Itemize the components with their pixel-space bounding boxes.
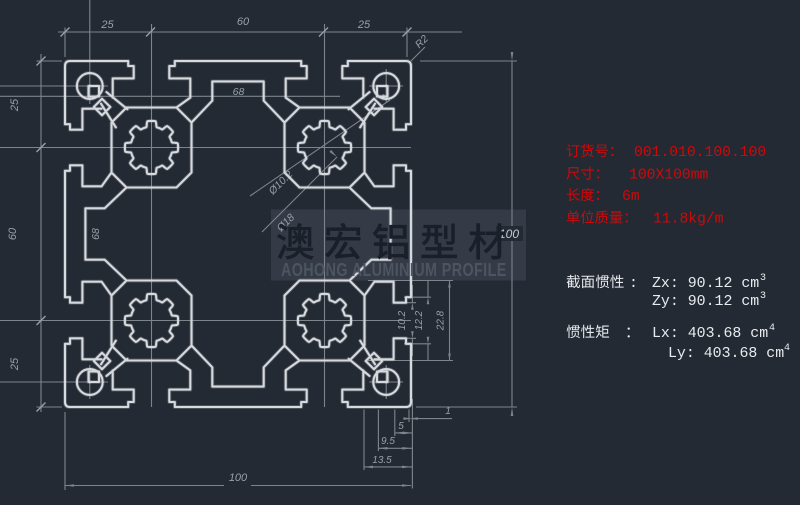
svg-text:3: 3 xyxy=(760,273,766,284)
svg-text:12.2: 12.2 xyxy=(414,310,425,330)
svg-text:60: 60 xyxy=(7,227,19,240)
svg-text:Ly: 403.68 cm: Ly: 403.68 cm xyxy=(668,346,784,362)
svg-text:6m: 6m xyxy=(622,189,640,205)
svg-text:001.010.100.100: 001.010.100.100 xyxy=(634,145,766,161)
svg-text:13.5: 13.5 xyxy=(372,455,392,466)
svg-text:68: 68 xyxy=(233,86,245,98)
svg-text:25: 25 xyxy=(357,19,371,31)
svg-text::: : xyxy=(629,276,638,292)
svg-text:25: 25 xyxy=(100,19,114,31)
svg-text:22.8: 22.8 xyxy=(436,310,447,331)
svg-text:1: 1 xyxy=(445,406,451,417)
svg-text:25: 25 xyxy=(9,357,21,371)
svg-text:9.5: 9.5 xyxy=(381,436,395,447)
svg-text:68: 68 xyxy=(90,228,102,240)
svg-text:60: 60 xyxy=(237,16,250,28)
svg-text:3: 3 xyxy=(760,291,766,302)
svg-text:100X100mm: 100X100mm xyxy=(629,168,709,184)
svg-text:Zy: 90.12 cm: Zy: 90.12 cm xyxy=(652,294,759,310)
svg-text:AOHONG ALUMINIUM PROFILE: AOHONG ALUMINIUM PROFILE xyxy=(281,260,507,280)
svg-text:5: 5 xyxy=(398,421,404,432)
svg-text:4: 4 xyxy=(784,343,790,354)
svg-text:4: 4 xyxy=(769,323,775,334)
svg-text:Zx: 90.12 cm: Zx: 90.12 cm xyxy=(652,276,759,292)
svg-text:25: 25 xyxy=(9,98,21,112)
svg-text:：: ： xyxy=(625,326,640,342)
svg-text:100: 100 xyxy=(229,472,248,484)
svg-text:10.2: 10.2 xyxy=(397,310,408,330)
svg-text:11.8kg/m: 11.8kg/m xyxy=(653,212,724,228)
svg-text:Lx: 403.68 cm: Lx: 403.68 cm xyxy=(652,326,768,342)
